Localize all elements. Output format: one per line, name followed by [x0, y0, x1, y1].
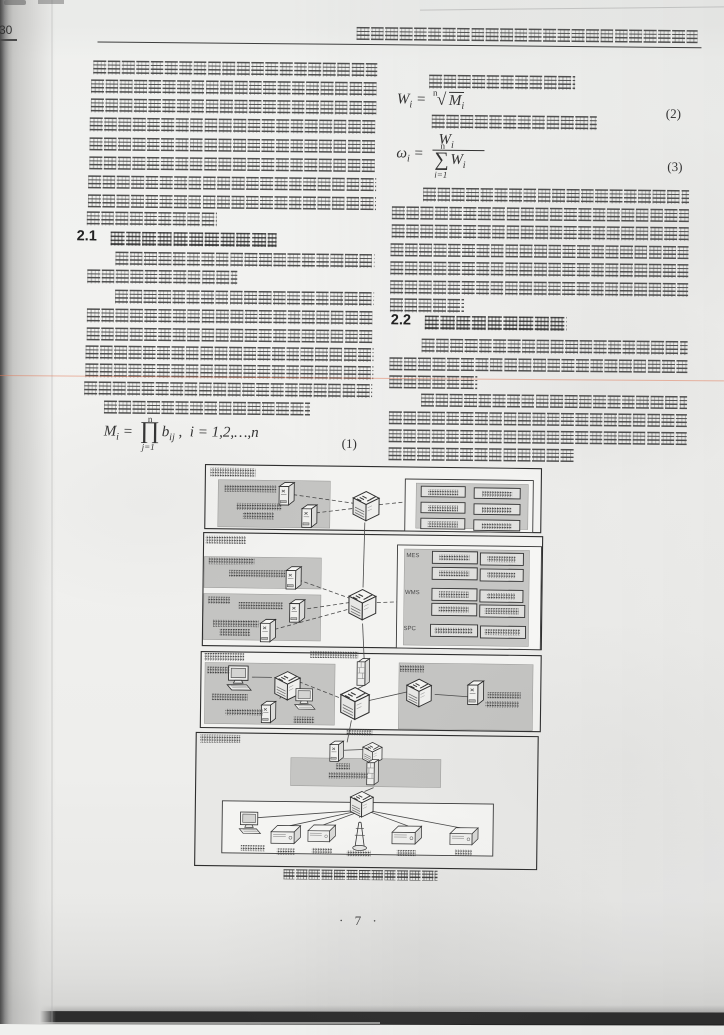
svg-text:SPC: SPC: [403, 626, 416, 632]
svg-text:WMS: WMS: [405, 590, 420, 596]
svg-text:MES: MES: [406, 553, 419, 559]
